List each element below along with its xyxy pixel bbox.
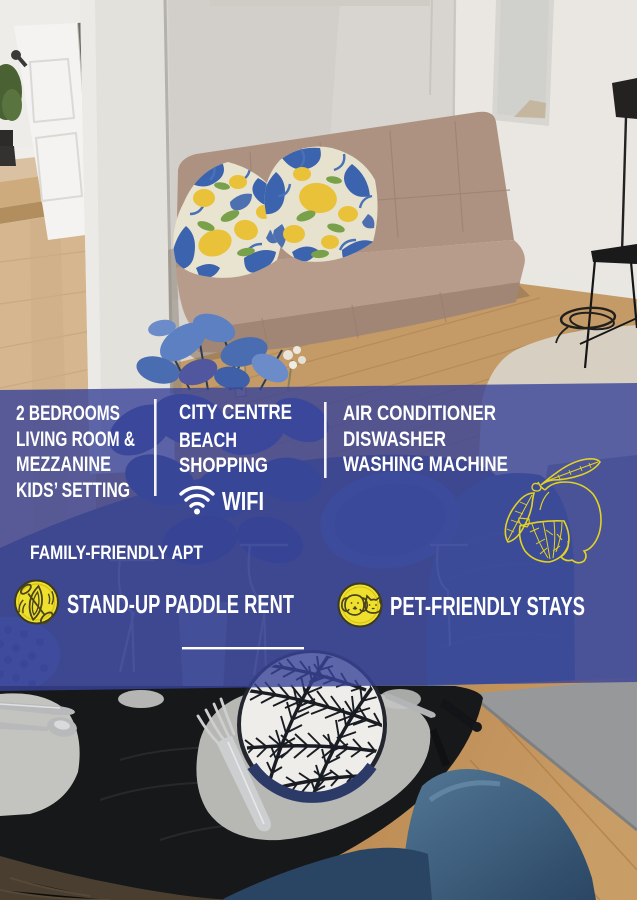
- svg-text:FAMILY-FRIENDLY APT: FAMILY-FRIENDLY APT: [30, 542, 203, 564]
- svg-text:WIFI: WIFI: [222, 486, 264, 516]
- svg-text:STAND-UP PADDLE RENT: STAND-UP PADDLE RENT: [67, 589, 294, 619]
- svg-text:PET-FRIENDLY STAYS: PET-FRIENDLY STAYS: [390, 591, 585, 621]
- svg-text:MEZZANINE: MEZZANINE: [16, 453, 111, 476]
- svg-text:AIR CONDITIONER: AIR CONDITIONER: [343, 402, 496, 425]
- svg-text:2 BEDROOMS: 2 BEDROOMS: [16, 402, 120, 425]
- svg-text:CITY CENTRE: CITY CENTRE: [179, 401, 292, 424]
- svg-text:LIVING ROOM &: LIVING ROOM &: [16, 428, 135, 451]
- svg-text:SHOPPING: SHOPPING: [179, 454, 268, 477]
- svg-text:WASHING MACHINE: WASHING MACHINE: [343, 453, 508, 476]
- svg-text:KIDS’ SETTING: KIDS’ SETTING: [16, 479, 130, 502]
- svg-text:BEACH: BEACH: [179, 429, 237, 452]
- svg-text:DISWASHER: DISWASHER: [343, 428, 446, 451]
